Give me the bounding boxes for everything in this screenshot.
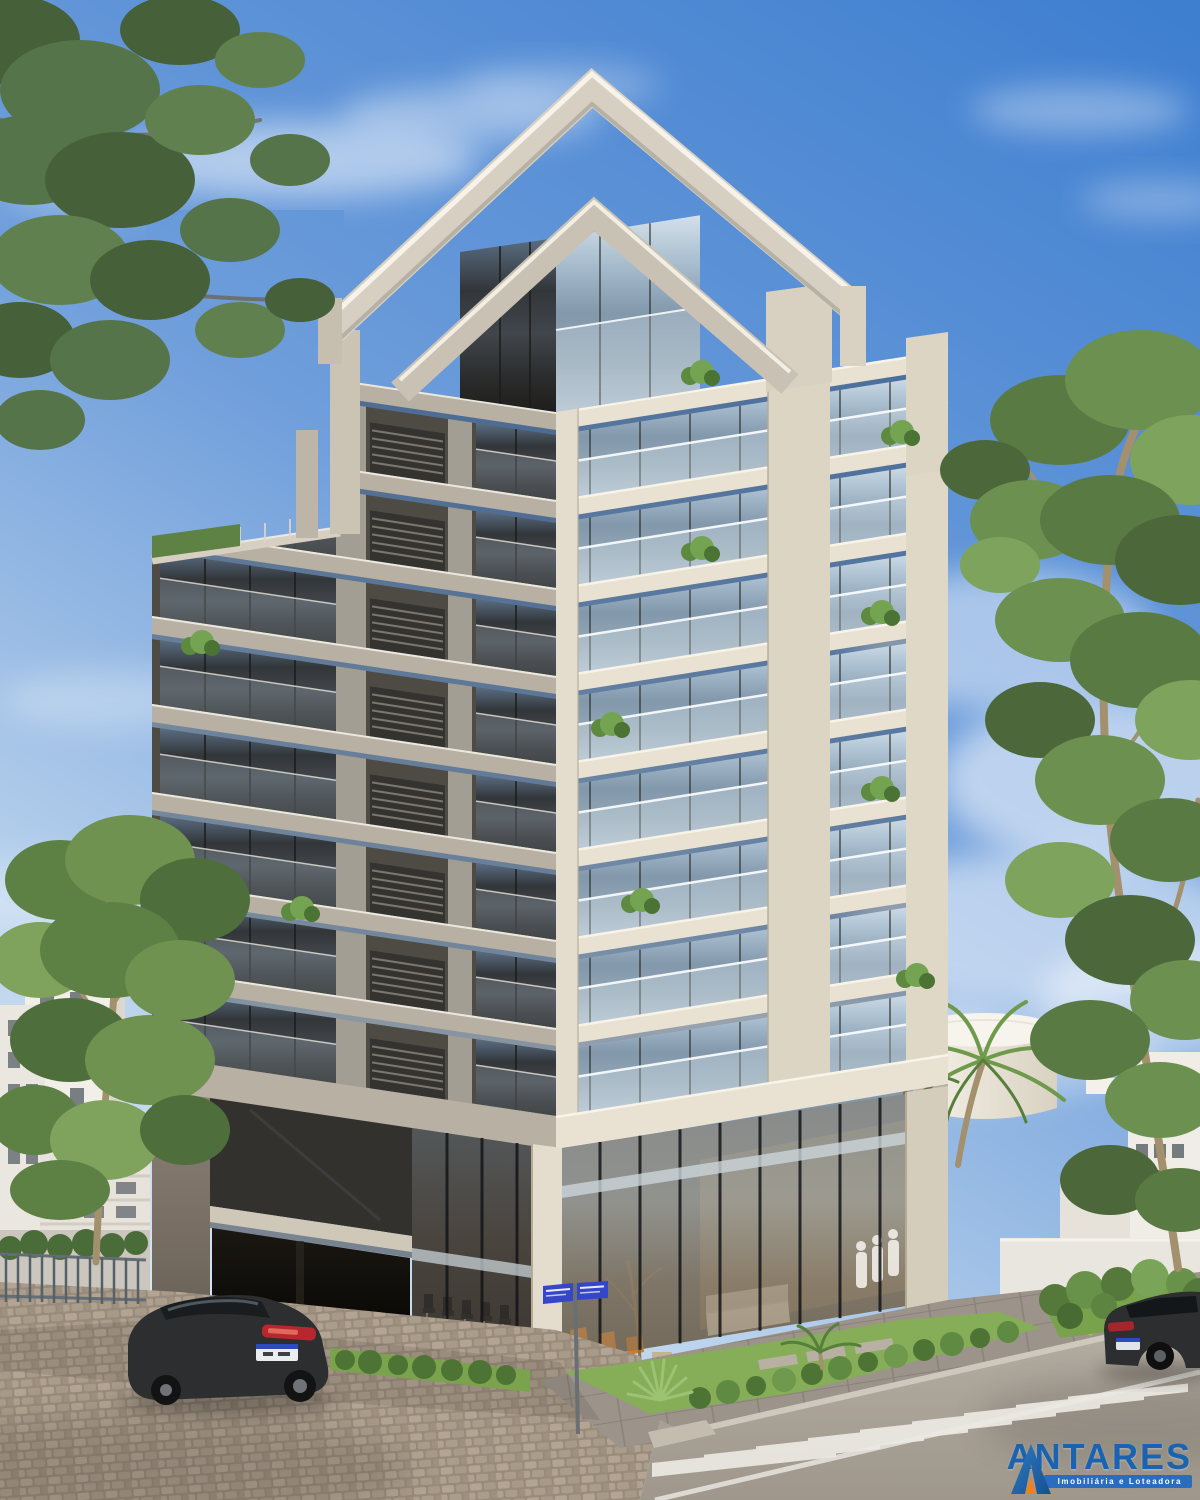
- render-scene: [0, 0, 1200, 1500]
- apartment-tower: [146, 74, 948, 1368]
- lobby-right-column: [906, 1086, 948, 1310]
- logo-tagline: Imobiliária e Loteadora: [1044, 1475, 1192, 1488]
- antares-logo-mark: [1007, 1442, 1055, 1498]
- watermark-logo: ANTARES Imobiliária e Loteadora: [1007, 1442, 1192, 1488]
- architectural-render: ANTARES Imobiliária e Loteadora: [0, 0, 1200, 1500]
